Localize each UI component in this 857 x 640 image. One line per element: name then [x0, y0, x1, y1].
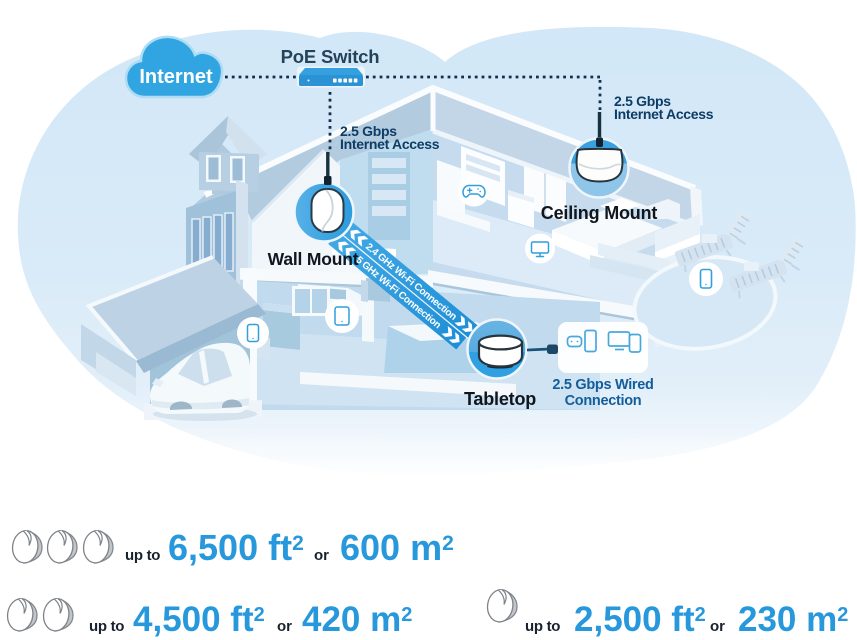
svg-text:Internet Access: Internet Access	[340, 136, 440, 152]
svg-text:Wall Mount: Wall Mount	[268, 249, 359, 269]
svg-text:6,500 ft2: 6,500 ft2	[168, 527, 304, 568]
svg-text:up to: up to	[89, 618, 124, 635]
svg-text:up to: up to	[525, 618, 560, 635]
svg-text:2.5 Gbps Wired: 2.5 Gbps Wired	[552, 377, 653, 393]
svg-text:Connection: Connection	[565, 393, 642, 409]
svg-text:or: or	[710, 618, 725, 635]
svg-text:Internet: Internet	[139, 66, 213, 88]
svg-text:or: or	[277, 618, 292, 635]
svg-text:PoE Switch: PoE Switch	[281, 46, 380, 67]
svg-text:4,500 ft2: 4,500 ft2	[133, 600, 265, 639]
svg-text:or: or	[314, 547, 329, 564]
svg-text:up to: up to	[125, 547, 160, 564]
svg-text:420 m2: 420 m2	[302, 600, 412, 639]
svg-text:Tabletop: Tabletop	[464, 389, 536, 409]
svg-text:230 m2: 230 m2	[738, 600, 848, 639]
svg-text:600 m2: 600 m2	[340, 527, 454, 568]
svg-text:Internet Access: Internet Access	[614, 106, 714, 122]
svg-text:Ceiling Mount: Ceiling Mount	[541, 203, 658, 223]
svg-text:2,500 ft2: 2,500 ft2	[574, 600, 706, 639]
